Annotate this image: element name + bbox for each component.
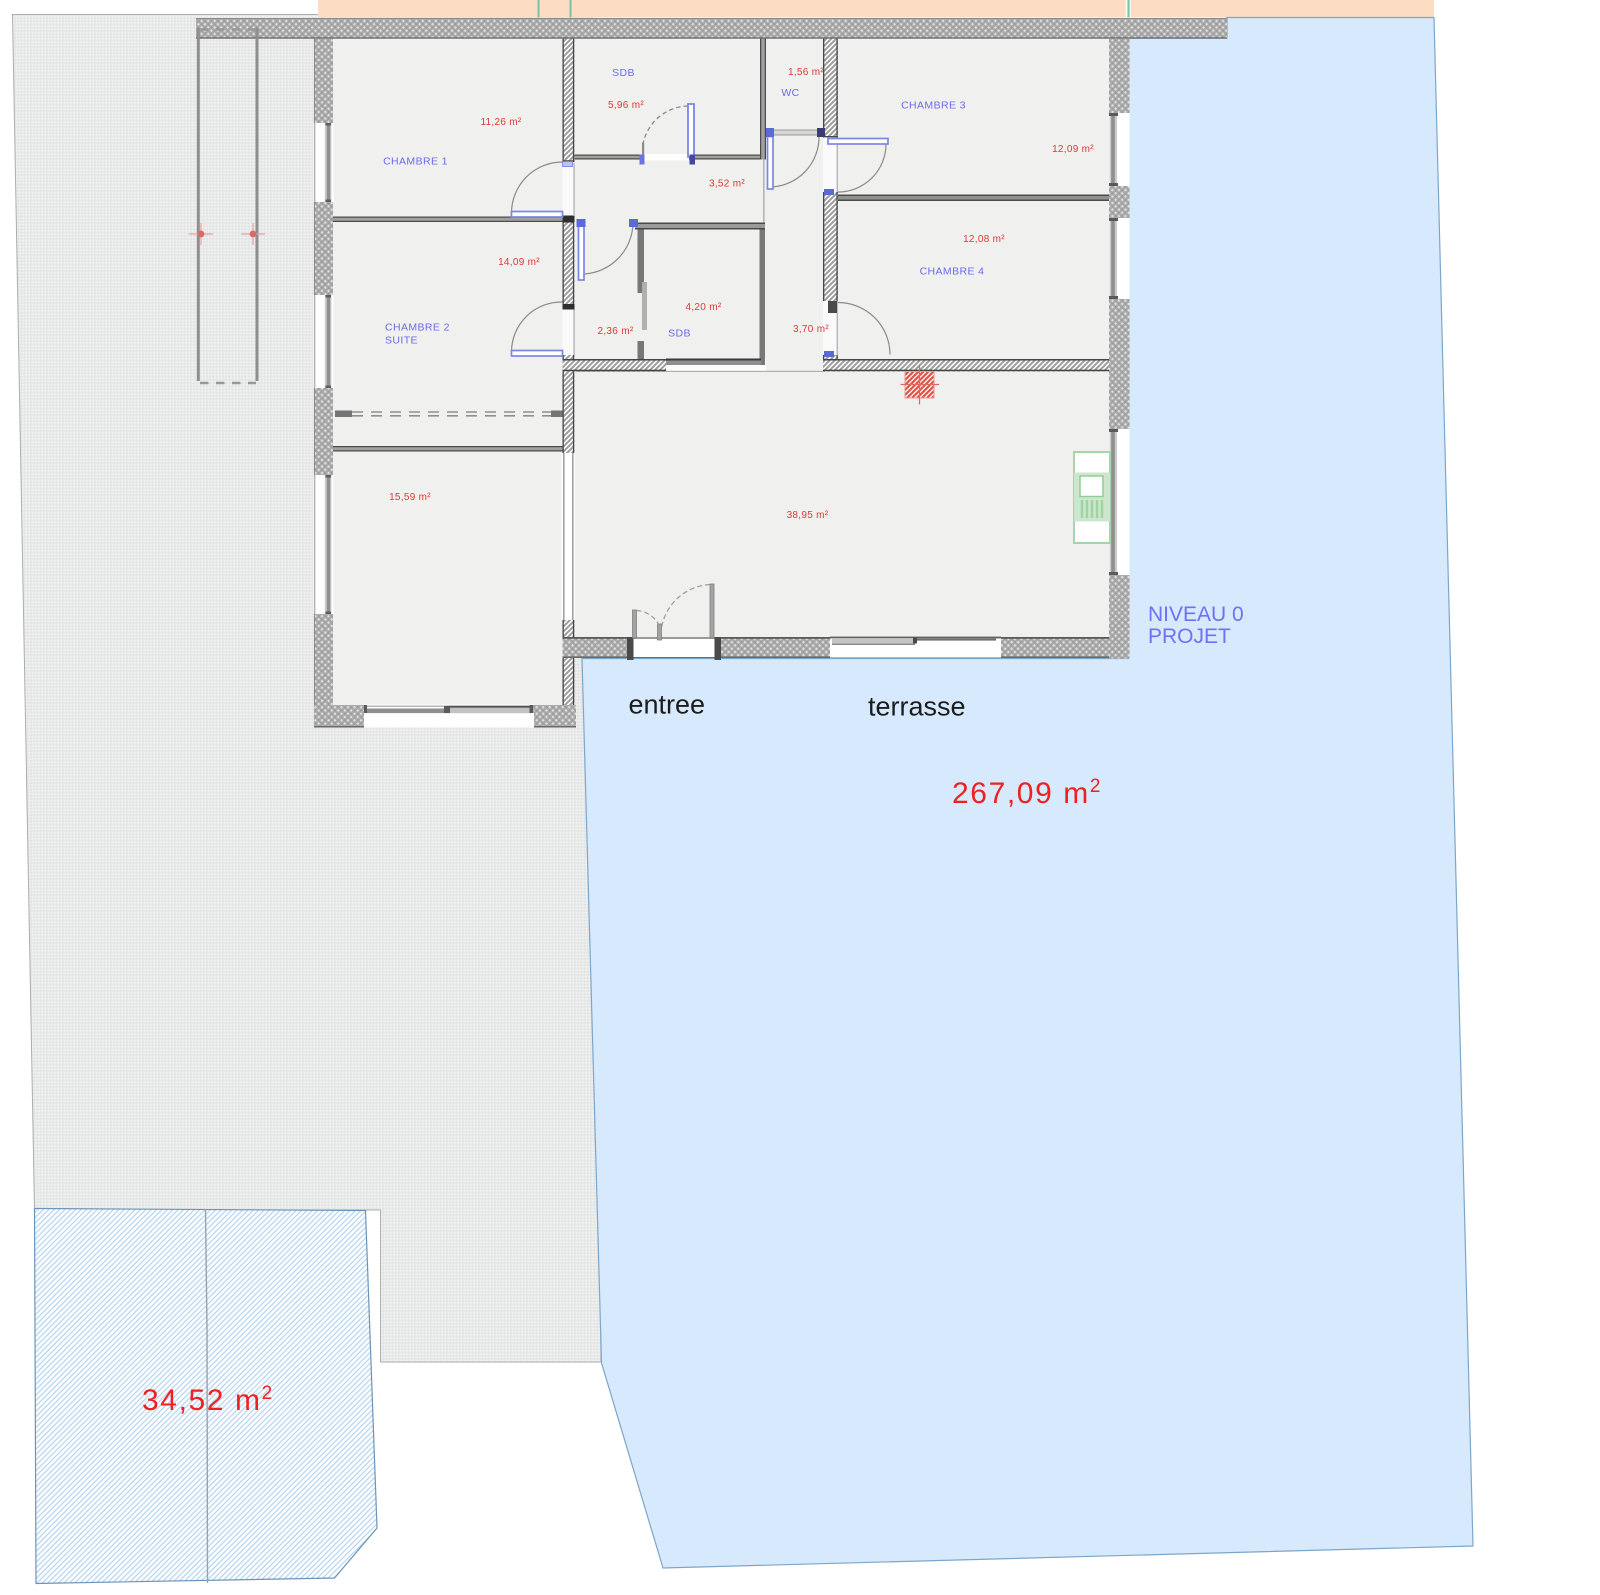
svg-text:12,09 m²: 12,09 m² (1052, 144, 1094, 155)
svg-text:267,09 m2: 267,09 m2 (952, 776, 1102, 810)
svg-text:1,56 m²: 1,56 m² (788, 67, 824, 78)
svg-text:terrasse: terrasse (868, 692, 966, 722)
svg-text:3,52 m²: 3,52 m² (709, 179, 745, 190)
svg-text:12,08 m²: 12,08 m² (963, 234, 1005, 245)
svg-text:entree: entree (629, 690, 706, 720)
svg-text:11,26 m²: 11,26 m² (480, 117, 521, 128)
svg-text:SDB: SDB (612, 67, 635, 79)
svg-text:2,36 m²: 2,36 m² (597, 326, 633, 337)
svg-text:15,59 m²: 15,59 m² (389, 492, 431, 503)
svg-text:CHAMBRE 4: CHAMBRE 4 (920, 266, 985, 278)
svg-text:14,09 m²: 14,09 m² (498, 257, 540, 268)
svg-text:3,70 m²: 3,70 m² (793, 324, 829, 335)
svg-text:WC: WC (781, 87, 799, 99)
svg-text:CHAMBRE 1: CHAMBRE 1 (383, 156, 448, 168)
svg-text:5,96 m²: 5,96 m² (608, 100, 644, 111)
svg-text:CHAMBRE 3: CHAMBRE 3 (901, 100, 966, 112)
svg-text:4,20 m²: 4,20 m² (685, 302, 721, 313)
svg-text:SDB: SDB (668, 328, 691, 340)
svg-text:CHAMBRE 2: CHAMBRE 2 (385, 322, 450, 334)
svg-text:38,95 m²: 38,95 m² (787, 510, 829, 521)
svg-text:34,52 m2: 34,52 m2 (142, 1383, 274, 1417)
svg-text:NIVEAU 0: NIVEAU 0 (1148, 603, 1244, 626)
svg-text:SUITE: SUITE (385, 335, 418, 347)
svg-text:PROJET: PROJET (1148, 625, 1231, 648)
